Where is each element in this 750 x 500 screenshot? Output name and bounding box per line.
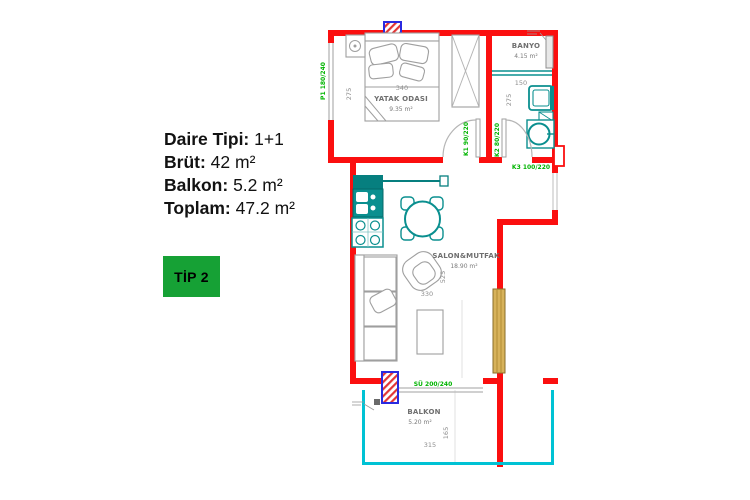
toilet — [527, 120, 554, 148]
floor-plan-drawing: 340 YATAK ODASI 9.35 m² 275 BANYO 4.15 m… — [0, 0, 750, 500]
side-window-panel — [493, 289, 505, 373]
shower-screen — [492, 71, 552, 75]
wall-balcony-right — [497, 384, 503, 467]
sofa — [355, 255, 398, 361]
balcony-sliding-door — [398, 388, 483, 392]
balcony-width-dim: 315 — [424, 441, 436, 449]
wall-stub-right — [543, 378, 558, 384]
bathroom-height-dim: 275 — [505, 94, 513, 106]
coffee-table — [417, 310, 443, 354]
wall-bedroom-left-upper — [328, 30, 334, 43]
window-marker-balcony — [382, 372, 398, 403]
faucet — [371, 195, 376, 200]
construction-lines — [455, 300, 462, 462]
floor-plan-page: Daire Tipi: 1+1 Brüt: 42 m² Balkon: 5.2 … — [0, 0, 750, 500]
dining-set — [401, 197, 443, 240]
dining-table — [405, 202, 440, 237]
wall-bedroom-bathroom-divider — [486, 30, 492, 163]
bedroom-height-dim: 275 — [345, 88, 353, 100]
entrance-door-label: K3 100/220 — [512, 164, 550, 171]
bathroom-name: BANYO — [512, 42, 540, 50]
wall-salon-bottom-right — [483, 378, 503, 384]
burner — [356, 236, 365, 245]
balcony-slider-label: SÜ 200/240 — [414, 381, 453, 388]
entrance-threshold — [553, 173, 557, 210]
sink-bowl — [356, 192, 368, 202]
burner — [356, 221, 365, 230]
bed-headboard — [365, 33, 439, 41]
bedroom-door — [443, 119, 480, 157]
wall-salon-bottom-left — [350, 378, 383, 384]
bathroom-width-dim: 150 — [515, 79, 527, 87]
sink-bowl — [356, 204, 368, 214]
bed-pillow — [368, 63, 393, 79]
wall-step — [497, 219, 558, 225]
bedroom-name: YATAK ODASI — [373, 95, 428, 103]
entrance-step — [554, 146, 564, 166]
living-name: SALON&MUTFAK — [432, 252, 500, 260]
stove — [352, 218, 383, 247]
burner — [371, 221, 380, 230]
living-area: 18.90 m² — [450, 263, 478, 270]
living-height-dim: 525 — [439, 271, 447, 283]
bedroom-area: 9.35 m² — [389, 106, 413, 113]
faucet — [371, 206, 376, 211]
wall-bedroom-left-lower — [328, 120, 334, 163]
balcony-name: BALKON — [407, 408, 440, 416]
bathroom-door-label: K2 80/220 — [494, 123, 501, 157]
washing-machine — [529, 86, 554, 110]
nightstand — [346, 35, 365, 57]
wall-bottom-bedroom — [328, 157, 443, 163]
bedroom-window — [328, 43, 334, 120]
drain-box — [374, 399, 380, 405]
bedroom-window-label: P1 180/240 — [320, 62, 327, 100]
bathroom-pipe — [546, 36, 553, 68]
burner — [371, 236, 380, 245]
balcony-height-dim: 165 — [442, 427, 450, 439]
bathroom-area: 4.15 m² — [514, 53, 538, 60]
living-width-dim: 330 — [421, 290, 433, 298]
bedroom-door-label: K1 90/220 — [463, 122, 470, 156]
balcony-area: 5.20 m² — [408, 419, 432, 426]
wardrobe — [452, 35, 479, 107]
window-marker-top — [384, 22, 401, 34]
bedroom-width-dim: 340 — [396, 84, 408, 92]
